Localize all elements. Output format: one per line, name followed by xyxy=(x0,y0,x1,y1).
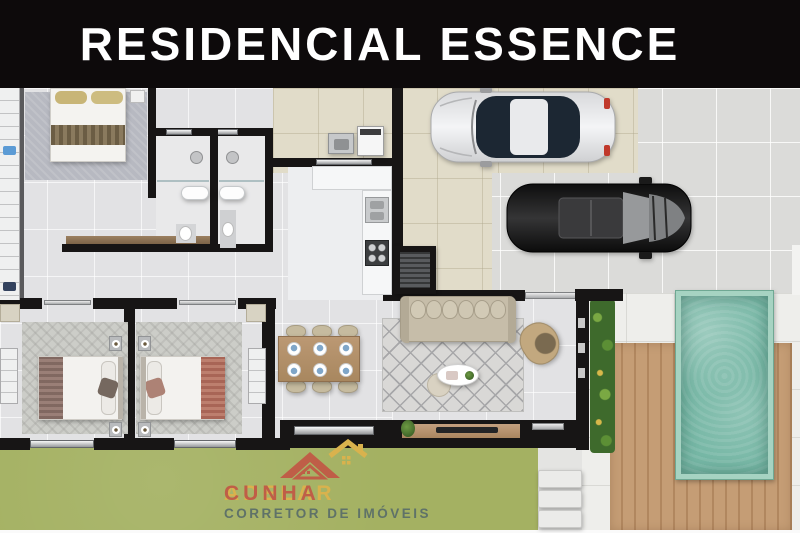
wardrobe-bedroom2 xyxy=(0,348,18,404)
logo-brand-red: CUNHA xyxy=(224,482,320,506)
wall-bottom-a xyxy=(0,438,30,450)
sofa-cushion xyxy=(474,300,490,319)
wall-bottom-b xyxy=(94,438,174,450)
toilet-left-base xyxy=(176,224,196,243)
sofa-cushion xyxy=(490,300,506,319)
table-plant xyxy=(465,371,474,380)
toilet-left-bowl xyxy=(179,226,192,241)
master-nightstand xyxy=(130,90,145,103)
sofa-cushion xyxy=(410,300,426,319)
lamp xyxy=(141,340,149,348)
black-car xyxy=(503,176,703,260)
wall-closet-edge xyxy=(20,88,24,300)
sink-round-left xyxy=(190,151,203,164)
wall-pillar-2 xyxy=(578,343,585,353)
grill-niche xyxy=(394,246,436,294)
sink-round-right xyxy=(226,151,239,164)
nightstand xyxy=(138,336,151,351)
wall-bath-left xyxy=(148,88,156,198)
place-setting xyxy=(339,363,353,377)
shower-glass-right xyxy=(219,180,264,182)
bedroom2-door xyxy=(44,300,91,305)
kitchen-window xyxy=(316,159,372,165)
sink-basin-1 xyxy=(370,201,384,209)
wardrobe-master xyxy=(0,88,20,300)
wall-pillar-1 xyxy=(578,318,585,328)
sink-basin-2 xyxy=(370,212,384,220)
sofa-cushion xyxy=(426,300,442,319)
master-bed xyxy=(50,88,126,162)
corner-closet-right xyxy=(246,304,266,322)
step-3 xyxy=(538,510,582,528)
grill xyxy=(400,252,430,288)
folded-clothes-blue xyxy=(3,146,16,155)
title-banner: RESIDENCIAL ESSENCE xyxy=(0,0,800,88)
master-pillow-2 xyxy=(91,91,123,104)
bed3-blanket xyxy=(201,357,225,419)
step-1 xyxy=(538,470,582,488)
master-blanket xyxy=(51,125,125,145)
wardrobe-bedroom3 xyxy=(248,348,266,404)
washing-machine xyxy=(357,126,384,156)
kitchen-counter-top xyxy=(312,166,392,190)
bed-2 xyxy=(38,356,122,420)
place-setting xyxy=(339,342,353,356)
logo-tagline: CORRETOR DE IMÓVEIS xyxy=(224,506,431,521)
bed3-headboard xyxy=(141,357,146,419)
sliding-door-top xyxy=(525,292,577,299)
laundry-basin xyxy=(334,139,349,150)
bed-3 xyxy=(140,356,224,420)
page-title: RESIDENCIAL ESSENCE xyxy=(80,17,681,71)
wall-bath-mid xyxy=(210,128,218,252)
sliding-door-bottom xyxy=(532,423,564,430)
place-setting xyxy=(287,342,301,356)
toilet-right-base xyxy=(220,210,236,248)
bathtub-right xyxy=(219,186,245,200)
laundry-sink xyxy=(328,133,354,154)
lamp xyxy=(141,426,149,434)
washer-lid xyxy=(360,129,381,135)
swimming-pool xyxy=(676,291,773,479)
realtor-logo: ADELARCUNHA CORRETOR DE IMÓVEIS xyxy=(210,438,440,530)
step-2 xyxy=(538,490,582,508)
place-setting xyxy=(313,363,327,377)
white-car xyxy=(428,86,620,168)
place-setting xyxy=(313,342,327,356)
lamp xyxy=(112,426,120,434)
shoes-dark xyxy=(3,282,16,291)
dining-window xyxy=(294,426,374,435)
bed2-headboard xyxy=(118,357,123,419)
right-edge-patch xyxy=(792,245,800,295)
wall-bath-right xyxy=(265,128,273,252)
place-setting xyxy=(287,363,301,377)
shower-glass-left xyxy=(157,180,209,182)
table-tray xyxy=(446,371,458,380)
vertical-garden xyxy=(590,299,615,453)
sofa-arm-left xyxy=(401,297,409,343)
tv-screen xyxy=(436,427,498,433)
wall-master-bottom xyxy=(62,244,273,252)
sofa xyxy=(400,296,515,342)
coffee-table xyxy=(437,364,479,386)
dining-table xyxy=(278,336,360,382)
sofa-arm-right xyxy=(508,297,516,343)
console-plant xyxy=(401,420,415,437)
wall-bedrooms-top-b xyxy=(93,298,177,309)
nightstand xyxy=(138,422,151,437)
toilet-right-bowl xyxy=(222,222,234,237)
bedroom2-window xyxy=(30,440,94,448)
bathtub-left xyxy=(181,186,209,200)
stove xyxy=(365,240,389,266)
lamp xyxy=(112,340,120,348)
bedroom3-door xyxy=(179,300,236,305)
corner-closet-left xyxy=(0,304,20,322)
floorplan-image: ADELARCUNHA CORRETOR DE IMÓVEIS RESIDENC… xyxy=(0,0,800,533)
master-pillow-1 xyxy=(55,91,87,104)
wall-pillar-3 xyxy=(578,368,585,378)
kitchen-sink xyxy=(365,197,389,223)
sofa-cushion xyxy=(458,300,474,319)
nightstand xyxy=(109,422,122,437)
house-roofs-icon xyxy=(272,438,382,480)
nightstand xyxy=(109,336,122,351)
bath-window-1 xyxy=(166,129,192,135)
bed2-blanket xyxy=(39,357,63,419)
sofa-cushion xyxy=(442,300,458,319)
